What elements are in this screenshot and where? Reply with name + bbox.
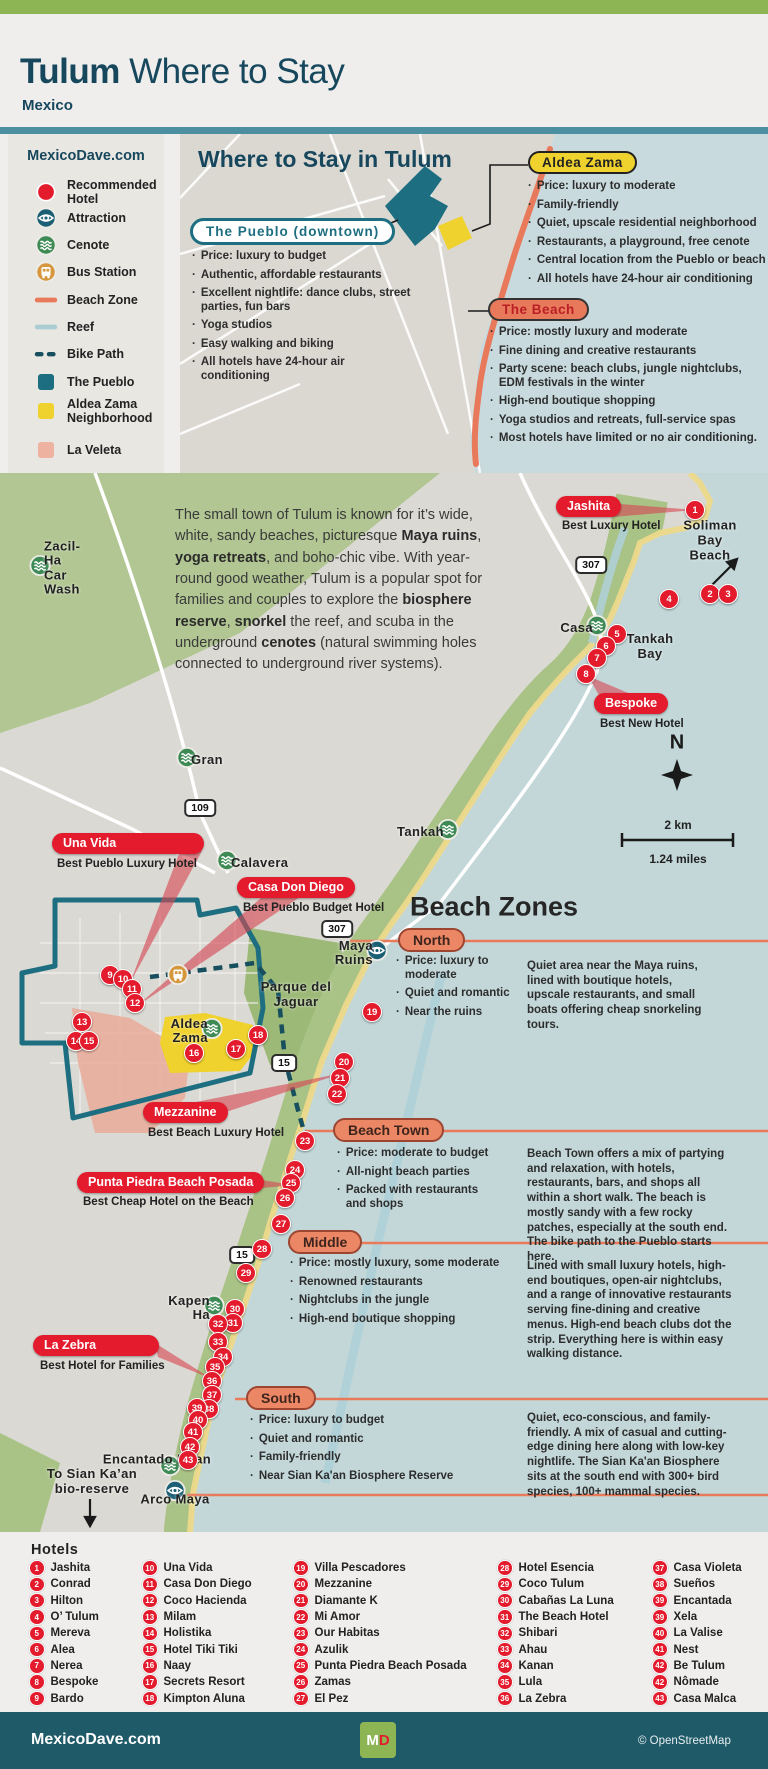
hotel-name: Be Tulum <box>674 1660 726 1672</box>
route-shield-109: 109 <box>184 799 216 817</box>
bullet-item: ·Quiet, upscale residential neighborhood <box>528 217 766 231</box>
hotel-list-item: 39Xela <box>652 1609 742 1625</box>
hotel-name: Nerea <box>51 1660 83 1672</box>
hotel-list-item: 6Alea <box>29 1641 99 1657</box>
hotel-marker-23: 23 <box>295 1131 315 1151</box>
bullet-item: ·Quiet and romantic <box>396 987 518 1001</box>
zone-middle-desc: Lined with small luxury hotels, high-end… <box>527 1259 733 1362</box>
hotel-list-item: 8Bespoke <box>29 1674 99 1690</box>
zone-south-pill: South <box>246 1386 316 1410</box>
hotel-number-badge: 14 <box>142 1626 158 1642</box>
map-label: 2 km <box>664 818 691 832</box>
inset-title: Where to Stay in Tulum <box>198 146 452 173</box>
hotel-list-item: 42Nômade <box>652 1674 742 1690</box>
hotel-number-badge: 2 <box>29 1577 45 1593</box>
hotel-list-item: 20Mezzanine <box>293 1576 467 1592</box>
hotel-list-item: 1Jashita <box>29 1560 99 1576</box>
hotel-list-item: 40La Valise <box>652 1625 742 1641</box>
hotel-list-item: 35Lula <box>497 1674 614 1690</box>
poi-label: Tankah <box>397 825 444 840</box>
attraction-icon <box>34 206 58 230</box>
cenote-icon: Gran <box>176 747 198 774</box>
callout-bespoke-sub: Best New Hotel <box>600 718 684 730</box>
hotel-number-badge: 40 <box>652 1626 668 1642</box>
page-title-rest: Where to Stay <box>120 52 344 91</box>
hotel-name: O’ Tulum <box>51 1611 99 1623</box>
hotel-list-item: 27El Pez <box>293 1690 467 1706</box>
hotel-number-badge: 29 <box>497 1577 513 1593</box>
hotel-name: Lula <box>519 1676 543 1688</box>
zone-north-pill: North <box>398 928 465 952</box>
callout-una-vida: Una Vida <box>52 833 204 854</box>
map-label: N <box>670 732 684 755</box>
hotel-name: Conrad <box>51 1578 91 1590</box>
hotel-list-item: 28Hotel Esencia <box>497 1560 614 1576</box>
route-shield-15: 15 <box>271 1054 297 1072</box>
hotel-number-badge: 25 <box>293 1658 309 1674</box>
hotel-list-item: 2Conrad <box>29 1576 99 1592</box>
hotel-list-item: 36La Zebra <box>497 1690 614 1706</box>
hotel-list-item: 24Azulik <box>293 1641 467 1657</box>
legend-item-aldea: Aldea Zama Neighborhood <box>34 397 164 426</box>
md-logo-icon: MD <box>360 1722 396 1758</box>
map-label: Beach Zones <box>410 892 578 923</box>
hotel-name: Coco Hacienda <box>164 1595 247 1607</box>
hotel-name: Nest <box>674 1644 699 1656</box>
callout-beach-bullets: ·Price: mostly luxury and moderate·Fine … <box>490 326 758 451</box>
hotel-number-badge: 11 <box>142 1577 158 1593</box>
poi-label: Maya Ruins <box>335 938 373 967</box>
cenote-icon: Zacil-Ha Car Wash <box>29 555 51 582</box>
hotel-list-item: 14Holistika <box>142 1625 252 1641</box>
callout-la-zebra-sub: Best Hotel for Families <box>40 1360 165 1372</box>
hotel-name: Encantada <box>674 1595 732 1607</box>
poi-label: Casa <box>560 621 593 636</box>
hotel-number-badge: 12 <box>142 1593 158 1609</box>
callout-punta-piedra-sub: Best Cheap Hotel on the Beach <box>83 1196 254 1208</box>
hotel-number-badge: 30 <box>497 1593 513 1609</box>
cenote-icon: Calavera <box>216 850 238 877</box>
page-title: Tulum Where to Stay <box>20 52 344 92</box>
hotel-number-badge: 16 <box>142 1658 158 1674</box>
hotel-name: Nômade <box>674 1676 719 1688</box>
hotel-marker-8: 8 <box>576 664 596 684</box>
hotel-list-item: 42Be Tulum <box>652 1658 742 1674</box>
callout-casa-don-diego: Casa Don Diego <box>237 877 355 898</box>
hotel-number-badge: 3 <box>29 1593 45 1609</box>
hotel-name: Casa Violeta <box>674 1562 742 1574</box>
hotel-number-badge: 23 <box>293 1626 309 1642</box>
veleta-icon <box>34 438 58 462</box>
hotel-list-item: 18Kimpton Aluna <box>142 1690 252 1706</box>
attraction-icon: Maya Ruins <box>366 940 388 967</box>
hotel-marker-22: 22 <box>327 1084 347 1104</box>
hotel-number-badge: 26 <box>293 1674 309 1690</box>
hotel-name: Ahau <box>519 1644 548 1656</box>
hotel-number-badge: 24 <box>293 1642 309 1658</box>
zone-middle-bullets: ·Price: mostly luxury, some moderate·Ren… <box>290 1257 520 1331</box>
hotel-number-badge: 13 <box>142 1609 158 1625</box>
bullet-item: ·Price: moderate to budget <box>337 1147 489 1161</box>
hotel-list-item: 10Una Vida <box>142 1560 252 1576</box>
hotel-name: La Valise <box>674 1627 723 1639</box>
hotel-name: Bardo <box>51 1693 84 1705</box>
callout-mezzanine: Mezzanine <box>143 1102 228 1123</box>
cenote-icon: Tankah <box>437 819 459 846</box>
bullet-item: ·Excellent nightlife: dance clubs, stree… <box>192 287 414 314</box>
map-label: Soliman Bay Beach <box>681 519 739 564</box>
map-label: Tankah Bay <box>627 632 674 662</box>
hotel-marker-17: 17 <box>226 1039 246 1059</box>
hotel-number-badge: 20 <box>293 1577 309 1593</box>
bullet-item: ·Easy walking and biking <box>192 338 414 352</box>
hotel-name: Hotel Esencia <box>519 1562 594 1574</box>
bullet-item: ·Party scene: beach clubs, jungle nightc… <box>490 363 758 390</box>
legend-label: Aldea Zama Neighborhood <box>67 397 164 426</box>
hotel-marker-27: 27 <box>271 1214 291 1234</box>
bullet-item: ·Yoga studios <box>192 319 414 333</box>
bullet-item: ·Central location from the Pueblo or bea… <box>528 254 766 268</box>
hotel-number-badge: 8 <box>29 1674 45 1690</box>
bullet-item: ·Price: luxury to moderate <box>396 955 518 982</box>
bullet-item: ·All-night beach parties <box>337 1166 489 1180</box>
hotel-name: Bespoke <box>51 1676 99 1688</box>
callout-bespoke: Bespoke <box>594 693 668 714</box>
hotel-list-item: 38Sueños <box>652 1576 742 1592</box>
hotel-marker-29: 29 <box>236 1263 256 1283</box>
hotel-number-badge: 38 <box>652 1577 668 1593</box>
hotel-marker-28: 28 <box>252 1239 272 1259</box>
zone-south-bullets: ·Price: luxury to budget·Quiet and roman… <box>250 1414 465 1488</box>
callout-aldea-bullets: ·Price: luxury to moderate·Family-friend… <box>528 180 766 291</box>
hotels-column-2: 10Una Vida11Casa Don Diego12Coco Haciend… <box>142 1560 252 1707</box>
hotel-marker-16: 16 <box>184 1043 204 1063</box>
cenote-icon <box>34 233 58 257</box>
cenote-icon: Aldea Zama <box>201 1018 223 1045</box>
hotels-column-3: 19Villa Pescadores20Mezzanine21Diamante … <box>293 1560 467 1707</box>
hotel-list-item: 23Our Habitas <box>293 1625 467 1641</box>
hotel-number-badge: 17 <box>142 1674 158 1690</box>
map-label: To Sian Ka’an bio-reserve <box>47 1467 137 1497</box>
hotel-list-item: 29Coco Tulum <box>497 1576 614 1592</box>
poi-label: Calavera <box>231 856 288 871</box>
hotel-marker-19: 19 <box>362 1002 382 1022</box>
md-logo-d: D <box>379 1732 390 1749</box>
hotel-number-badge: 41 <box>652 1642 668 1658</box>
bullet-item: ·Family-friendly <box>528 199 766 213</box>
hotel-list-item: 33Ahau <box>497 1641 614 1657</box>
bus-icon <box>167 964 189 991</box>
bullet-item: ·Fine dining and creative restaurants <box>490 345 758 359</box>
hotel-number-badge: 39 <box>652 1593 668 1609</box>
zone-north-bullets: ·Price: luxury to moderate·Quiet and rom… <box>396 955 518 1024</box>
callout-pueblo-pill: The Pueblo (downtown) <box>190 218 395 245</box>
hotel-name: Kimpton Aluna <box>164 1693 245 1705</box>
hotel-list-item: 25Punta Piedra Beach Posada <box>293 1658 467 1674</box>
legend-label: Bus Station <box>67 265 136 279</box>
hotel-name: Hilton <box>51 1595 84 1607</box>
legend-item-pueblo: The Pueblo <box>34 370 134 394</box>
hotel-name: Secrets Resort <box>164 1676 245 1688</box>
poi-label: Kapen Ha <box>168 1293 210 1322</box>
legend-label: Attraction <box>67 211 126 225</box>
bullet-item: ·Restaurants, a playground, free cenote <box>528 236 766 250</box>
hotel-number-badge: 5 <box>29 1626 45 1642</box>
legend-label: Cenote <box>67 238 109 252</box>
hotel-name: Our Habitas <box>315 1627 380 1639</box>
hotel-name: Una Vida <box>164 1562 213 1574</box>
hotel-name: Mezzanine <box>315 1578 373 1590</box>
inset-map: Where to Stay in Tulum The Pueblo (downt… <box>180 134 768 473</box>
callout-pueblo-bullets: ·Price: luxury to budget·Authentic, affo… <box>192 250 414 389</box>
hotel-name: Coco Tulum <box>519 1578 585 1590</box>
legend-label: Bike Path <box>67 347 124 361</box>
legend-panel: MexicoDave.com Recommended HotelAttracti… <box>8 134 164 473</box>
zone-north-desc: Quiet area near the Maya ruins, lined wi… <box>527 959 709 1033</box>
hotels-column-4: 28Hotel Esencia29Coco Tulum30Cabañas La … <box>497 1560 614 1707</box>
hotel-number-badge: 42 <box>652 1658 668 1674</box>
legend-item-reef: Reef <box>34 315 94 339</box>
hotel-number-badge: 28 <box>497 1560 513 1576</box>
hotel-number-badge: 1 <box>29 1560 45 1576</box>
hotel-number-badge: 36 <box>497 1691 513 1707</box>
callout-aldea-pill: Aldea Zama <box>528 151 637 174</box>
bullet-item: ·Near the ruins <box>396 1006 518 1020</box>
legend-item-hotel: Recommended Hotel <box>34 178 164 207</box>
bullet-item: ·High-end boutique shopping <box>290 1313 520 1327</box>
top-accent-bar <box>0 0 768 14</box>
legend-item-cenote: Cenote <box>34 233 109 257</box>
footer-bar: MexicoDave.com MD © OpenStreetMap <box>0 1712 768 1769</box>
zone-middle-pill: Middle <box>288 1230 362 1254</box>
md-logo-m: M <box>366 1732 379 1749</box>
aldea-icon <box>34 399 58 423</box>
hotel-number-badge: 31 <box>497 1609 513 1625</box>
hotel-marker-26: 26 <box>275 1188 295 1208</box>
bullet-item: ·Authentic, affordable restaurants <box>192 269 414 283</box>
hotel-number-badge: 43 <box>652 1691 668 1707</box>
callout-jashita: Jashita <box>556 496 621 517</box>
hotel-number-badge: 7 <box>29 1658 45 1674</box>
hotels-column-1: 1Jashita2Conrad3Hilton4O’ Tulum5Mereva6A… <box>29 1560 99 1707</box>
hotel-number-badge: 33 <box>497 1642 513 1658</box>
attraction-icon: Arco Maya <box>164 1480 186 1507</box>
poi-label: Zacil-Ha Car Wash <box>44 539 80 597</box>
bullet-item: ·Packed with restaurants and shops <box>337 1184 489 1211</box>
hotel-list-item: 34Kanan <box>497 1658 614 1674</box>
hotel-number-badge: 21 <box>293 1593 309 1609</box>
hotel-list-item: 43Casa Malca <box>652 1690 742 1706</box>
bullet-item: ·Quiet and romantic <box>250 1433 465 1447</box>
hotel-marker-43: 43 <box>178 1450 198 1470</box>
legend-item-bikepath: Bike Path <box>34 342 124 366</box>
hotel-marker-4: 4 <box>659 589 679 609</box>
hotel-list-item: 5Mereva <box>29 1625 99 1641</box>
hotel-number-badge: 39 <box>652 1609 668 1625</box>
hotel-name: The Beach Hotel <box>519 1611 609 1623</box>
legend-label: La Veleta <box>67 443 121 457</box>
legend-site-title: MexicoDave.com <box>8 148 164 164</box>
hotel-list-item: 41Nest <box>652 1641 742 1657</box>
poi-label: Arco Maya <box>140 1493 209 1508</box>
hotel-number-badge: 4 <box>29 1609 45 1625</box>
hotel-list-item: 17Secrets Resort <box>142 1674 252 1690</box>
hotel-name: Sueños <box>674 1578 716 1590</box>
hotel-name: Holistika <box>164 1627 212 1639</box>
hotel-number-badge: 37 <box>652 1560 668 1576</box>
hotel-marker-18: 18 <box>248 1025 268 1045</box>
hotel-list-item: 4O’ Tulum <box>29 1609 99 1625</box>
bikepath-icon <box>34 342 58 366</box>
hotel-name: Mi Amor <box>315 1611 361 1623</box>
hotel-marker-15: 15 <box>79 1031 99 1051</box>
legend-item-beachzone: Beach Zone <box>34 288 138 312</box>
hotel-icon <box>34 180 58 204</box>
legend-item-attraction: Attraction <box>34 206 126 230</box>
hotel-number-badge: 34 <box>497 1658 513 1674</box>
hotel-list-item: 21Diamante K <box>293 1593 467 1609</box>
hotel-name: Mereva <box>51 1627 91 1639</box>
zone-beach-town-pill: Beach Town <box>333 1118 444 1142</box>
hotel-number-badge: 27 <box>293 1691 309 1707</box>
hotels-section: Hotels 1Jashita2Conrad3Hilton4O’ Tulum5M… <box>0 1532 768 1712</box>
hotel-list-item: 13Milam <box>142 1609 252 1625</box>
teal-divider <box>0 127 768 134</box>
hotel-marker-13: 13 <box>72 1012 92 1032</box>
bullet-item: ·Price: mostly luxury and moderate <box>490 326 758 340</box>
hotels-title: Hotels <box>31 1542 78 1558</box>
page-subtitle: Mexico <box>22 97 73 114</box>
poi-label: Gran <box>191 753 223 768</box>
hotel-name: Shibari <box>519 1627 558 1639</box>
route-shield-307: 307 <box>575 556 607 574</box>
hotel-number-badge: 15 <box>142 1642 158 1658</box>
hotel-list-item: 9Bardo <box>29 1690 99 1706</box>
hotel-marker-32: 32 <box>208 1314 228 1334</box>
callout-beach-pill: The Beach <box>488 298 589 321</box>
zone-beach-town-bullets: ·Price: moderate to budget·All-night bea… <box>337 1147 489 1216</box>
hotel-name: Azulik <box>315 1644 349 1656</box>
hotel-name: Kanan <box>519 1660 554 1672</box>
hotel-name: Diamante K <box>315 1595 378 1607</box>
legend-label: The Pueblo <box>67 375 134 389</box>
page-title-bold: Tulum <box>20 52 120 91</box>
bullet-item: ·Renowned restaurants <box>290 1276 520 1290</box>
bullet-item: ·Yoga studios and retreats, full-service… <box>490 414 758 428</box>
hotel-number-badge: 6 <box>29 1642 45 1658</box>
route-shield-307: 307 <box>321 920 353 938</box>
bullet-item: ·Most hotels have limited or no air cond… <box>490 432 758 446</box>
bullet-item: ·All hotels have 24-hour air conditionin… <box>192 356 414 383</box>
hotel-list-item: 37Casa Violeta <box>652 1560 742 1576</box>
reef-icon <box>34 315 58 339</box>
hotel-number-badge: 32 <box>497 1626 513 1642</box>
bus-icon <box>34 260 58 284</box>
footer-site: MexicoDave.com <box>31 1731 161 1749</box>
intro-paragraph: The small town of Tulum is known for it’… <box>175 505 499 676</box>
hotel-list-item: 3Hilton <box>29 1593 99 1609</box>
hotel-name: Villa Pescadores <box>315 1562 406 1574</box>
bullet-item: ·All hotels have 24-hour air conditionin… <box>528 273 766 287</box>
map-label: 1.24 miles <box>649 852 706 866</box>
hotel-list-item: 19Villa Pescadores <box>293 1560 467 1576</box>
hotel-list-item: 15Hotel Tiki Tiki <box>142 1641 252 1657</box>
main-map: The small town of Tulum is known for it’… <box>0 473 768 1532</box>
legend-label: Recommended Hotel <box>67 178 164 207</box>
hotel-list-item: 26Zamas <box>293 1674 467 1690</box>
hotel-list-item: 31The Beach Hotel <box>497 1609 614 1625</box>
bullet-item: ·Nightclubs in the jungle <box>290 1294 520 1308</box>
bullet-item: ·Family-friendly <box>250 1451 465 1465</box>
hotel-list-item: 7Nerea <box>29 1658 99 1674</box>
map-label: Parque del Jaguar <box>261 980 331 1010</box>
hotel-name: Milam <box>164 1611 197 1623</box>
bullet-item: ·Price: luxury to moderate <box>528 180 766 194</box>
hotel-marker-1: 1 <box>685 500 705 520</box>
hotel-name: Alea <box>51 1644 75 1656</box>
pueblo-icon <box>34 370 58 394</box>
hotel-name: Casa Don Diego <box>164 1578 252 1590</box>
hotel-number-badge: 19 <box>293 1560 309 1576</box>
hotel-name: Hotel Tiki Tiki <box>164 1644 238 1656</box>
callout-casa-don-diego-sub: Best Pueblo Budget Hotel <box>243 902 384 914</box>
hotel-number-badge: 9 <box>29 1691 45 1707</box>
hotel-list-item: 39Encantada <box>652 1593 742 1609</box>
hotel-list-item: 12Coco Hacienda <box>142 1593 252 1609</box>
hotel-name: Jashita <box>51 1562 91 1574</box>
bullet-item: ·Price: mostly luxury, some moderate <box>290 1257 520 1271</box>
hotels-column-5: 37Casa Violeta38Sueños39Encantada39Xela4… <box>652 1560 742 1707</box>
bullet-item: ·High-end boutique shopping <box>490 395 758 409</box>
hotel-number-badge: 42 <box>652 1674 668 1690</box>
zone-south-desc: Quiet, eco-conscious, and family-friendl… <box>527 1411 735 1499</box>
zone-beach-town-desc: Beach Town offers a mix of partying and … <box>527 1147 733 1265</box>
infographic-page: Tulum Where to Stay Mexico MexicoDave.co… <box>0 0 768 1769</box>
hotel-number-badge: 10 <box>142 1560 158 1576</box>
hotel-number-badge: 22 <box>293 1609 309 1625</box>
hotel-marker-12: 12 <box>125 993 145 1013</box>
hotel-marker-3: 3 <box>718 584 738 604</box>
callout-una-vida-sub: Best Pueblo Luxury Hotel <box>57 858 197 870</box>
hotel-name: Naay <box>164 1660 192 1672</box>
legend-item-bus: Bus Station <box>34 260 136 284</box>
hotel-list-item: 30Cabañas La Luna <box>497 1593 614 1609</box>
route-shield-15: 15 <box>229 1246 255 1264</box>
hotel-list-item: 32Shibari <box>497 1625 614 1641</box>
callout-punta-piedra: Punta Piedra Beach Posada <box>77 1172 264 1193</box>
callout-jashita-sub: Best Luxury Hotel <box>562 520 660 532</box>
bullet-item: ·Price: luxury to budget <box>192 250 414 264</box>
hotel-list-item: 16Naay <box>142 1658 252 1674</box>
hotel-name: Casa Malca <box>674 1693 737 1705</box>
callout-mezzanine-sub: Best Beach Luxury Hotel <box>148 1127 284 1139</box>
hotel-name: Xela <box>674 1611 698 1623</box>
hotel-marker-2: 2 <box>700 584 720 604</box>
callout-la-zebra: La Zebra <box>33 1335 159 1356</box>
legend-label: Beach Zone <box>67 293 138 307</box>
poi-label: Aldea Zama <box>171 1016 208 1045</box>
footer-credit: © OpenStreetMap <box>638 1735 731 1747</box>
bullet-item: ·Near Sian Ka'an Biosphere Reserve <box>250 1470 465 1484</box>
hotel-list-item: 22Mi Amor <box>293 1609 467 1625</box>
hotel-name: Cabañas La Luna <box>519 1595 614 1607</box>
bullet-item: ·Price: luxury to budget <box>250 1414 465 1428</box>
hotel-list-item: 11Casa Don Diego <box>142 1576 252 1592</box>
legend-label: Reef <box>67 320 94 334</box>
legend-item-veleta: La Veleta <box>34 438 121 462</box>
hotel-name: Punta Piedra Beach Posada <box>315 1660 467 1672</box>
hotel-number-badge: 35 <box>497 1674 513 1690</box>
